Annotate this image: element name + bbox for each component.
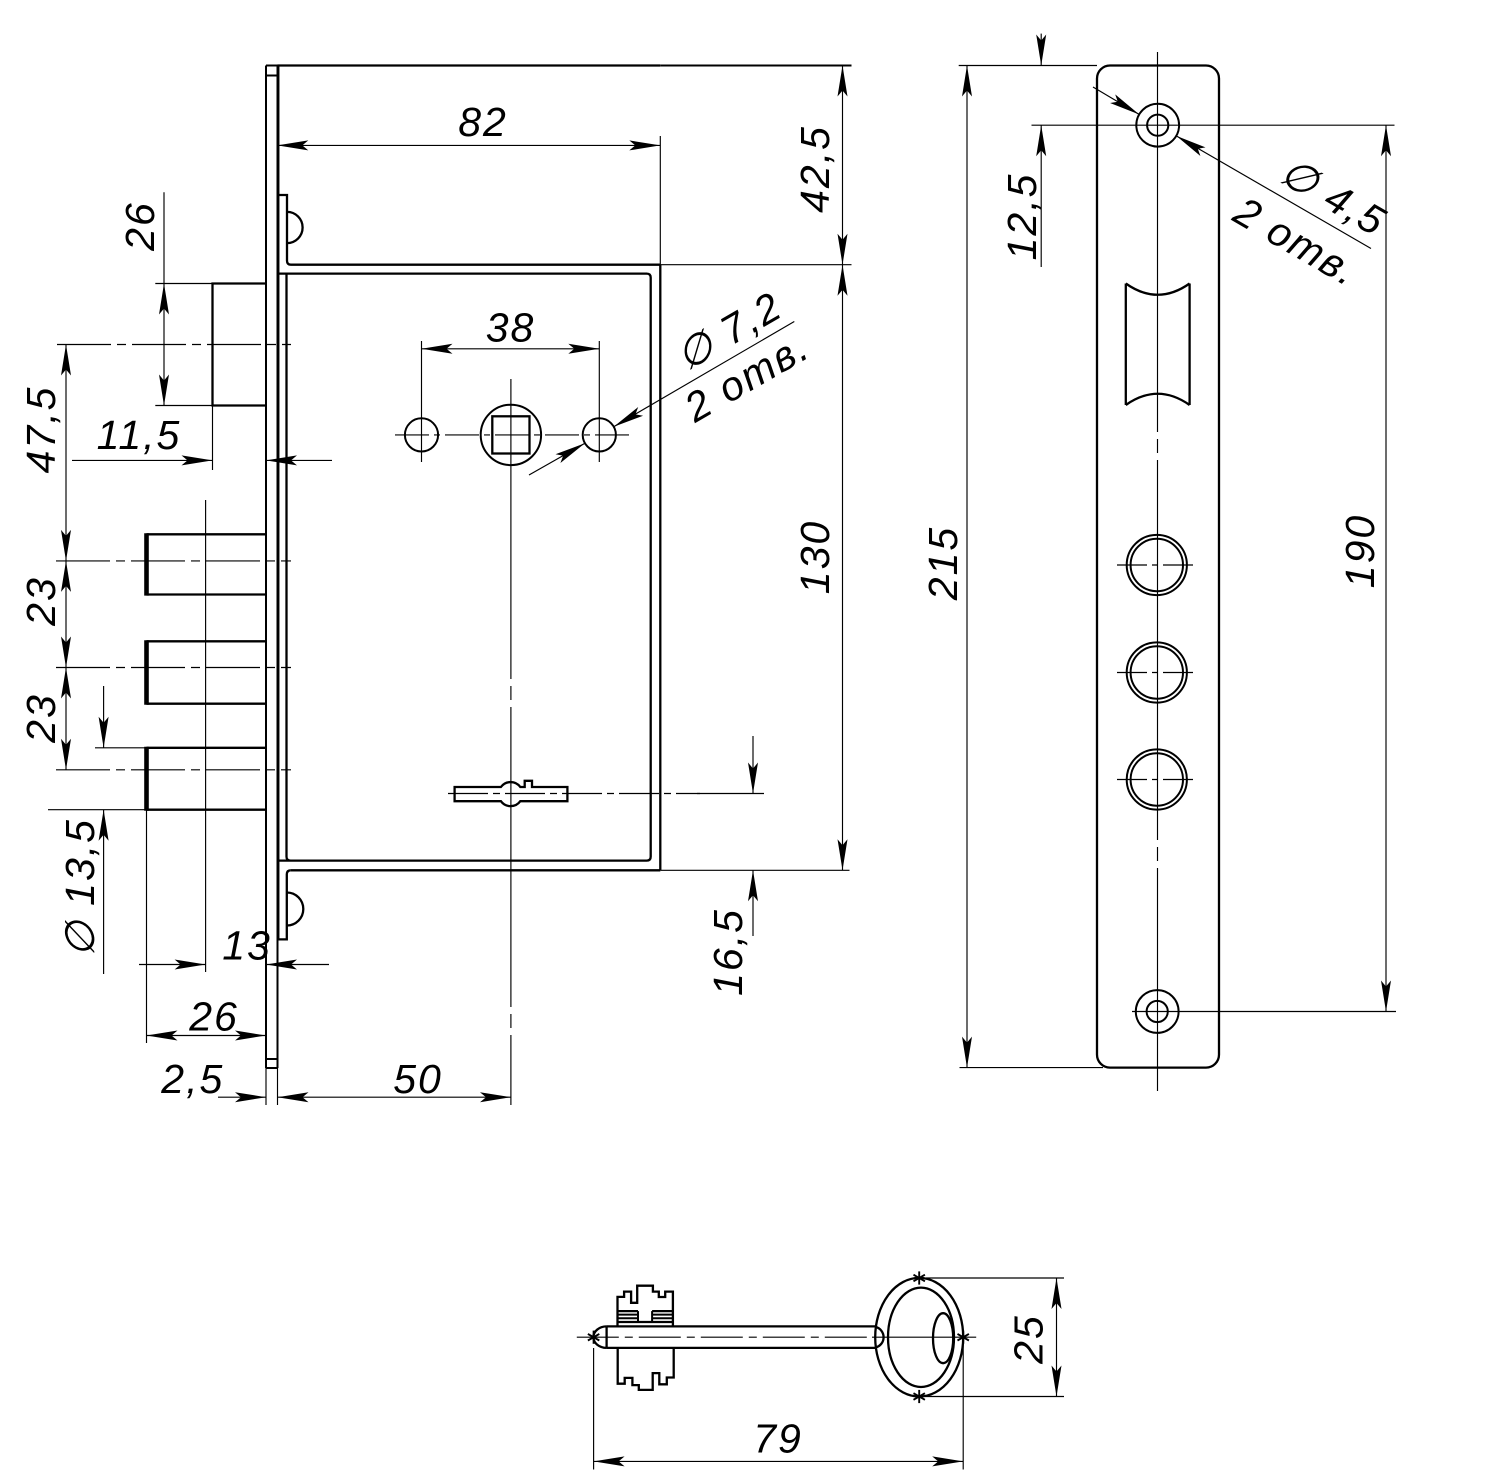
svg-text:25: 25: [1006, 1314, 1052, 1365]
svg-text:∅ 13,5: ∅ 13,5: [57, 818, 103, 957]
svg-text:190: 190: [1337, 514, 1383, 588]
svg-text:215: 215: [920, 526, 966, 601]
svg-text:23: 23: [18, 693, 64, 744]
svg-text:26: 26: [188, 994, 239, 1040]
svg-text:50: 50: [393, 1056, 443, 1102]
svg-text:47,5: 47,5: [18, 386, 64, 474]
svg-text:42,5: 42,5: [792, 125, 838, 213]
svg-text:82: 82: [458, 99, 508, 145]
svg-text:2,5: 2,5: [160, 1056, 224, 1102]
svg-text:130: 130: [792, 520, 838, 594]
svg-text:26: 26: [117, 201, 163, 252]
svg-text:16,5: 16,5: [705, 908, 751, 996]
svg-text:79: 79: [753, 1416, 803, 1462]
svg-text:11,5: 11,5: [97, 412, 182, 458]
svg-text:23: 23: [18, 576, 64, 627]
svg-text:13: 13: [222, 923, 272, 969]
svg-text:12,5: 12,5: [999, 173, 1045, 261]
svg-text:38: 38: [486, 305, 536, 351]
